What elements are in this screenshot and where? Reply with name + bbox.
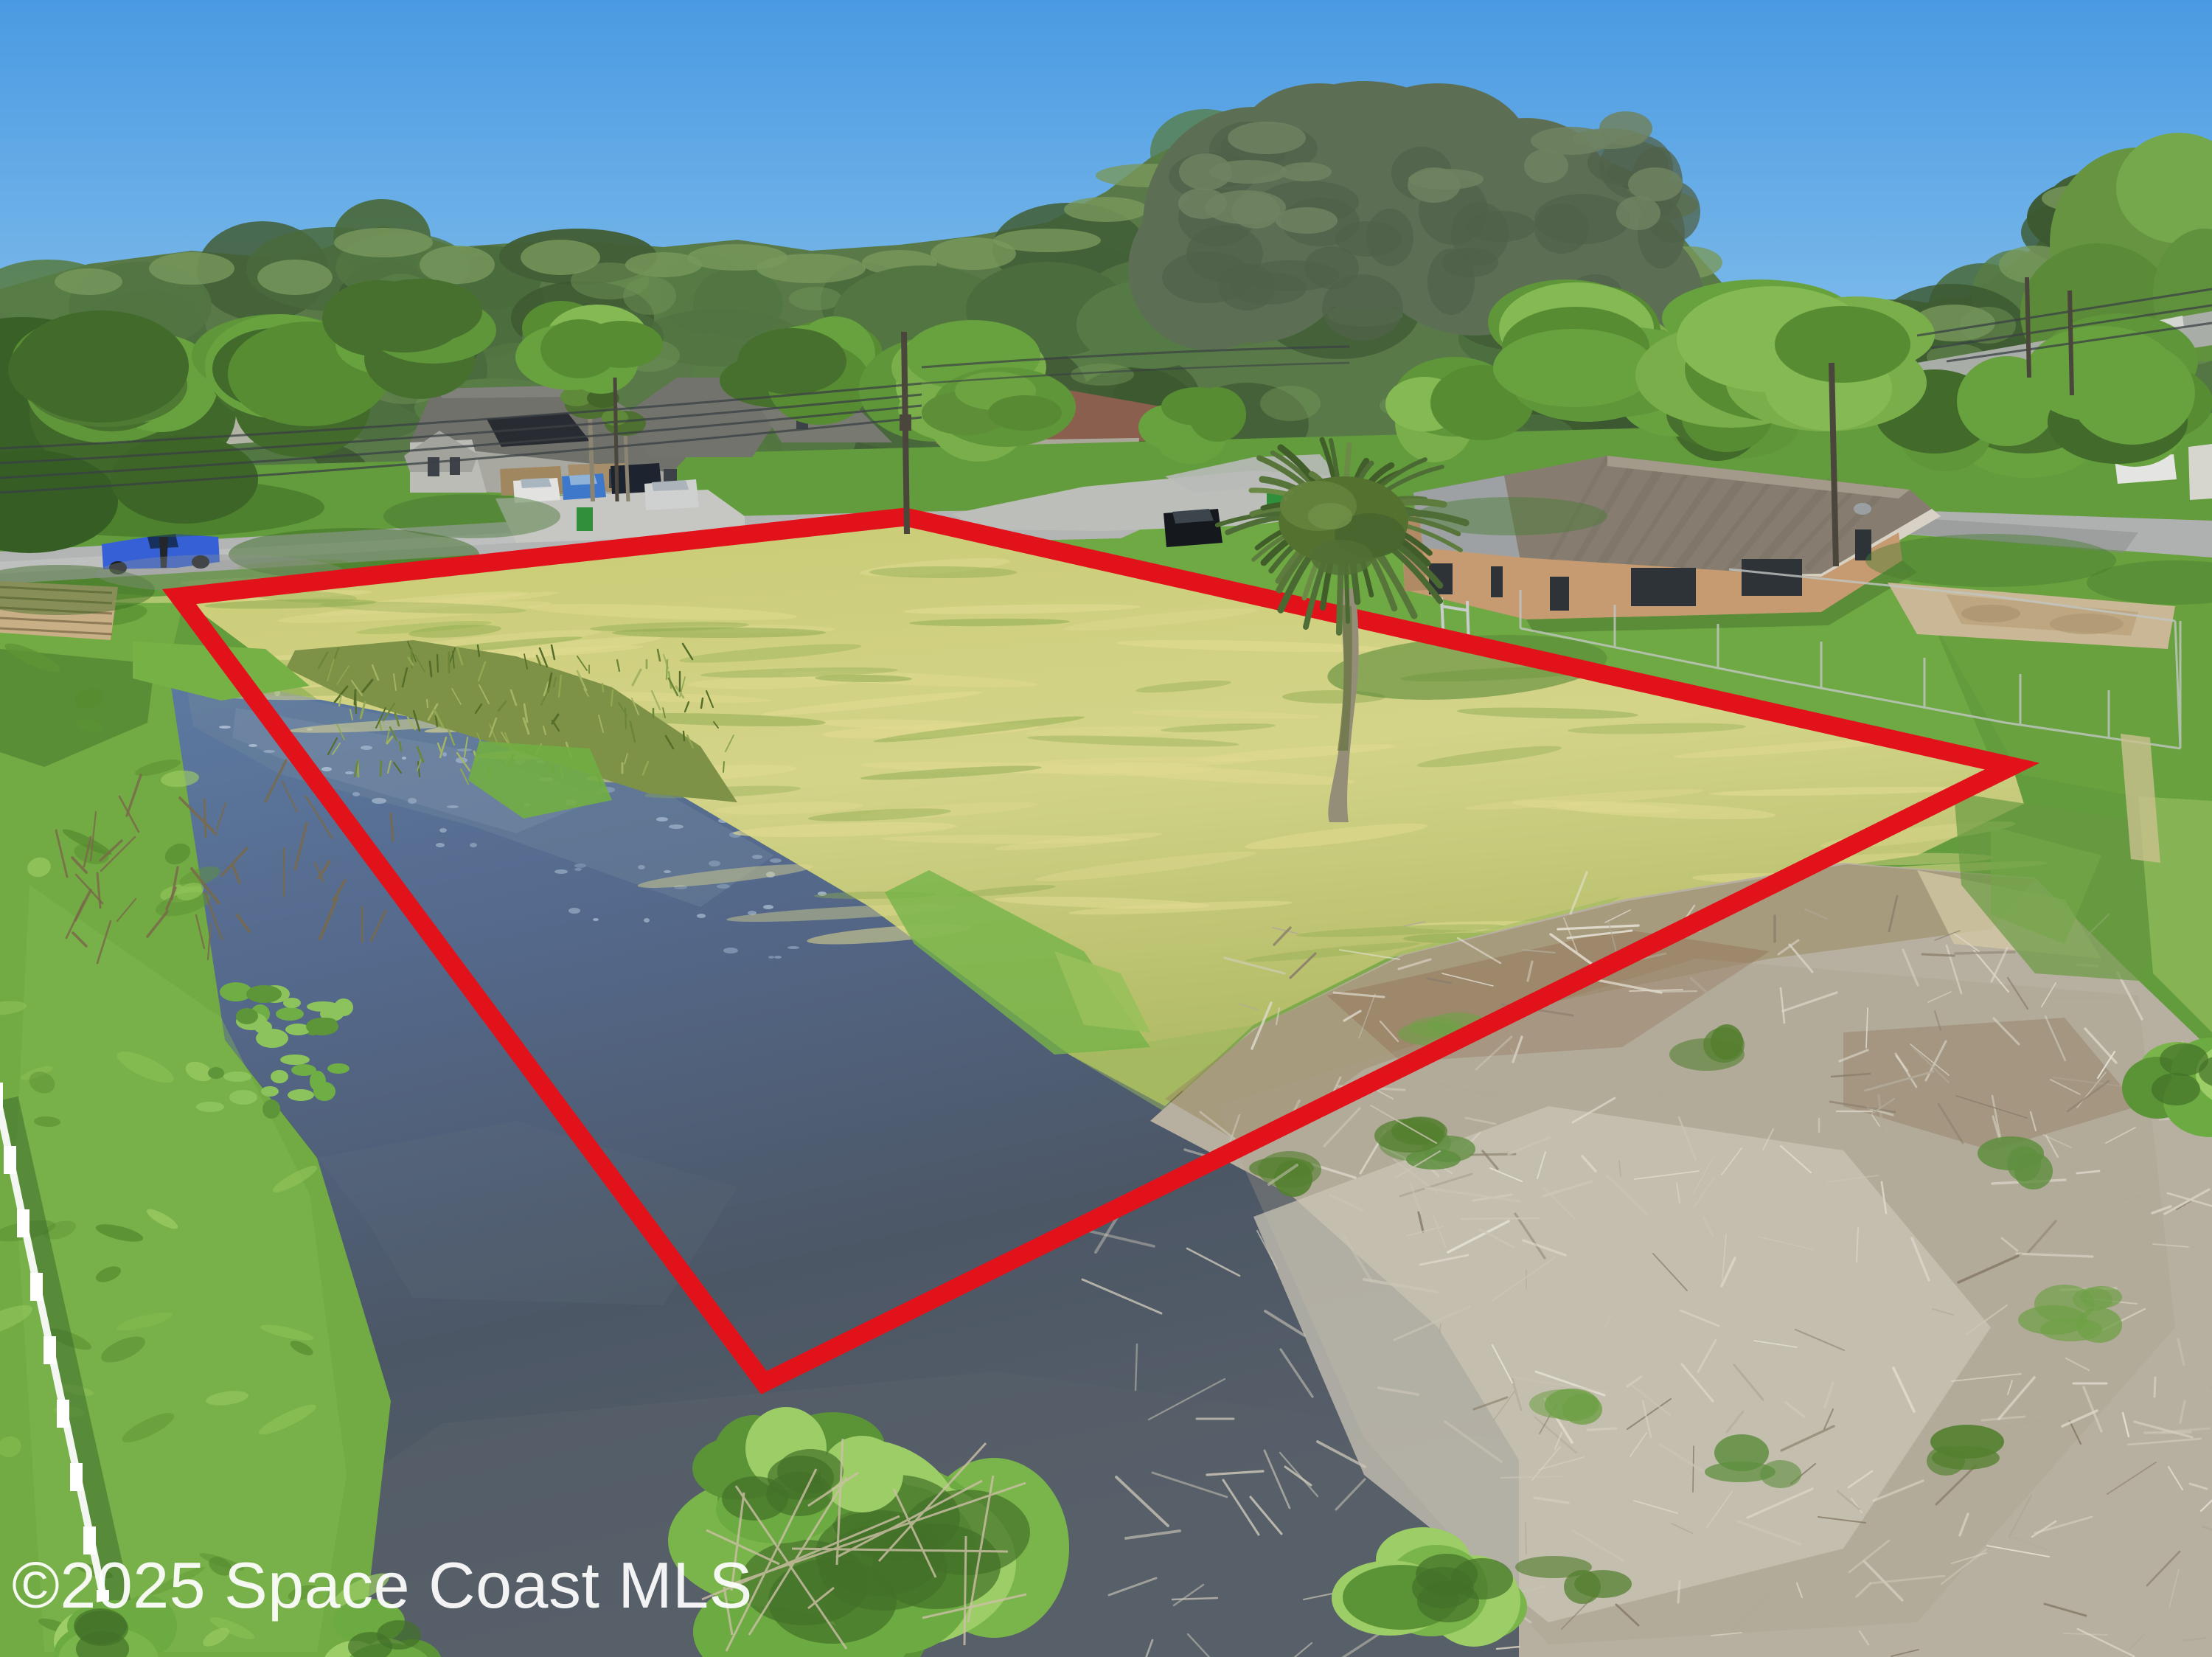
svg-text:©2025 Space Coast MLS: ©2025 Space Coast MLS <box>12 1549 753 1622</box>
